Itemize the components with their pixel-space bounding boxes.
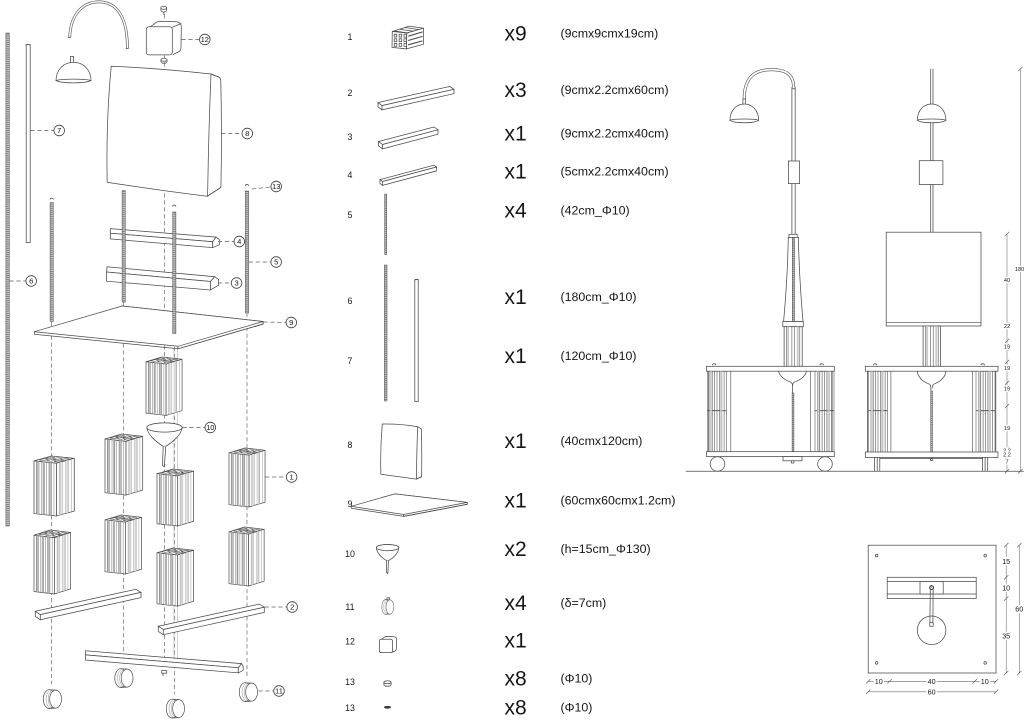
svg-text:2: 2 [348, 88, 353, 98]
svg-text:2.2: 2.2 [1003, 453, 1011, 459]
svg-text:19: 19 [1004, 426, 1010, 432]
svg-text:13: 13 [345, 677, 355, 687]
svg-text:10: 10 [981, 677, 989, 686]
svg-text:60: 60 [1015, 605, 1023, 614]
svg-text:180: 180 [1015, 267, 1024, 273]
svg-text:5: 5 [348, 210, 353, 220]
svg-text:13: 13 [345, 703, 355, 713]
svg-text:19: 19 [1004, 345, 1010, 351]
svg-text:(Φ10): (Φ10) [561, 700, 593, 714]
svg-text:22: 22 [1004, 324, 1010, 330]
svg-text:1: 1 [289, 473, 293, 482]
svg-text:9: 9 [289, 318, 293, 327]
svg-text:10: 10 [875, 677, 883, 686]
svg-text:(9cmx9cmx19cm): (9cmx9cmx19cm) [561, 26, 659, 40]
svg-text:12: 12 [201, 35, 209, 44]
svg-text:9: 9 [348, 499, 353, 509]
svg-text:13: 13 [272, 182, 280, 191]
svg-text:4: 4 [348, 170, 353, 180]
svg-text:10: 10 [345, 549, 355, 559]
svg-text:x1: x1 [505, 161, 527, 184]
svg-text:(120cm_Φ10): (120cm_Φ10) [561, 349, 637, 363]
svg-text:x8: x8 [505, 697, 527, 720]
svg-text:(Φ10): (Φ10) [561, 671, 593, 685]
svg-text:6: 6 [29, 277, 33, 286]
svg-text:10: 10 [1002, 584, 1010, 593]
svg-text:2: 2 [290, 603, 294, 612]
svg-text:(δ=7cm): (δ=7cm) [561, 596, 607, 610]
svg-text:40: 40 [928, 677, 936, 686]
svg-text:x1: x1 [505, 430, 527, 453]
svg-text:5: 5 [274, 258, 278, 267]
svg-text:x1: x1 [505, 123, 527, 146]
svg-text:(60cmx60cmx1.2cm): (60cmx60cmx1.2cm) [561, 493, 676, 507]
svg-text:(5cmx2.2cmx40cm): (5cmx2.2cmx40cm) [561, 164, 669, 178]
svg-text:x4: x4 [505, 592, 528, 615]
svg-text:40: 40 [1004, 278, 1010, 284]
svg-text:8: 8 [348, 440, 353, 450]
svg-text:7: 7 [1005, 460, 1008, 466]
svg-text:6: 6 [348, 296, 353, 306]
svg-text:x1: x1 [505, 630, 527, 653]
svg-text:1: 1 [348, 32, 353, 42]
svg-text:x3: x3 [505, 79, 527, 102]
svg-text:x1: x1 [505, 345, 527, 368]
svg-text:x1: x1 [505, 286, 527, 309]
svg-text:(h=15cm_Φ130): (h=15cm_Φ130) [561, 542, 651, 556]
svg-text:8: 8 [245, 129, 249, 138]
svg-text:3: 3 [234, 279, 238, 288]
svg-text:(40cmx120cm): (40cmx120cm) [561, 434, 643, 448]
svg-text:19: 19 [1004, 366, 1010, 372]
svg-text:11: 11 [345, 602, 354, 612]
svg-text:11: 11 [275, 687, 283, 696]
svg-text:(9cmx2.2cmx40cm): (9cmx2.2cmx40cm) [561, 126, 669, 140]
svg-text:19: 19 [1004, 387, 1010, 393]
svg-text:x8: x8 [505, 668, 527, 691]
svg-text:60: 60 [928, 687, 936, 696]
svg-text:x2: x2 [505, 538, 527, 561]
svg-text:7: 7 [348, 356, 353, 366]
svg-text:(9cmx2.2cmx60cm): (9cmx2.2cmx60cm) [561, 83, 669, 97]
svg-text:12: 12 [345, 637, 355, 647]
svg-text:x9: x9 [505, 23, 527, 46]
svg-text:(42cm_Φ10): (42cm_Φ10) [561, 203, 630, 217]
svg-text:x1: x1 [505, 490, 527, 513]
svg-text:15: 15 [1002, 557, 1010, 566]
svg-text:3: 3 [348, 132, 353, 142]
svg-text:10: 10 [206, 423, 214, 432]
svg-text:7: 7 [57, 126, 61, 135]
svg-text:x4: x4 [505, 200, 528, 223]
svg-text:35: 35 [1002, 631, 1010, 640]
svg-text:4: 4 [237, 237, 241, 246]
svg-text:(180cm_Φ10): (180cm_Φ10) [561, 290, 637, 304]
